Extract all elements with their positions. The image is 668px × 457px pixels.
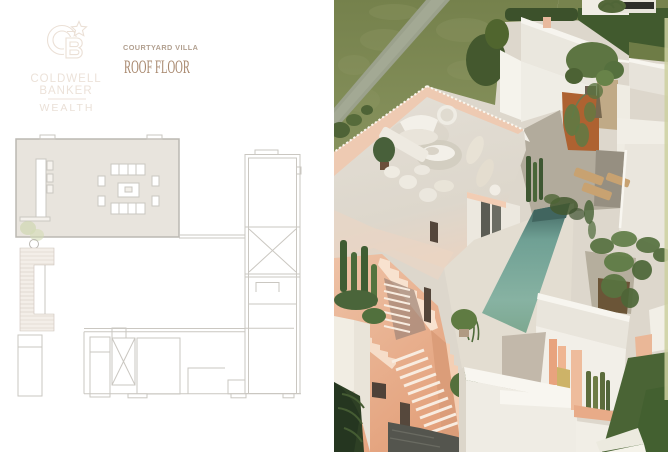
svg-text:WEALTH: WEALTH <box>40 102 95 114</box>
svg-text:BANKER: BANKER <box>39 85 92 97</box>
svg-text:COLDWELL: COLDWELL <box>30 73 101 85</box>
